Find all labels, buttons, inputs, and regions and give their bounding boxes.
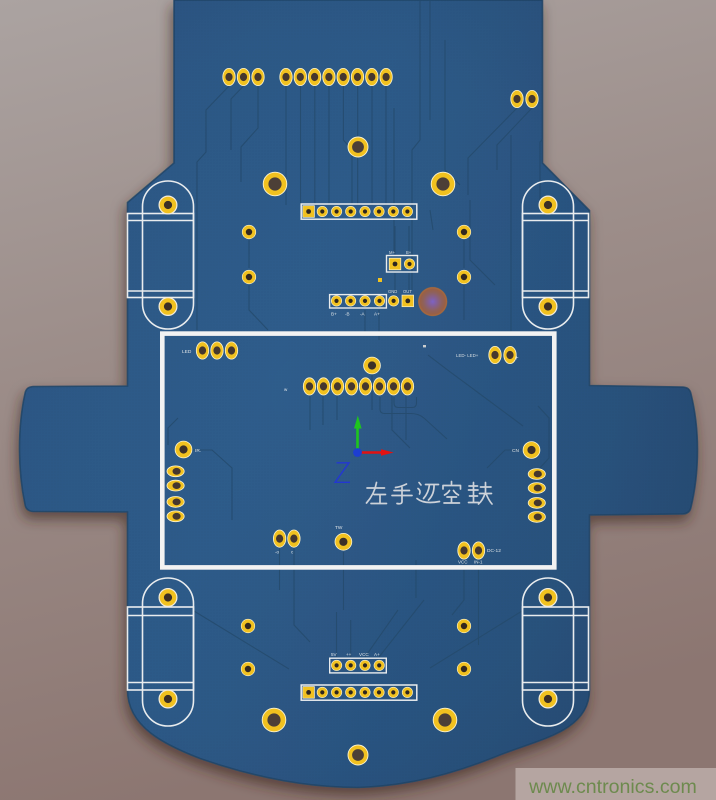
svg-text:A+: A+: [374, 312, 380, 317]
svg-text:-o: -o: [275, 550, 279, 555]
svg-text:M+: M+: [389, 250, 395, 255]
svg-text:GND: GND: [388, 289, 397, 294]
svg-text:LED- LED+: LED- LED+: [456, 353, 479, 358]
svg-text:www.cntronics.com: www.cntronics.com: [528, 776, 697, 798]
svg-text:DC-12: DC-12: [487, 548, 501, 554]
svg-text:IN-1: IN-1: [474, 560, 483, 565]
svg-text:+: +: [515, 356, 519, 362]
svg-text:A+: A+: [374, 652, 380, 657]
svg-text:++: ++: [346, 652, 352, 657]
svg-text:VCC: VCC: [359, 652, 369, 657]
svg-text:B+: B+: [331, 312, 337, 317]
svg-text:TW: TW: [335, 525, 343, 531]
svg-text:-B: -B: [345, 312, 350, 317]
svg-text:IR.: IR.: [195, 448, 201, 454]
svg-text:VCC: VCC: [458, 560, 468, 565]
svg-text:B+: B+: [406, 250, 412, 255]
svg-text:CN: CN: [512, 448, 519, 454]
svg-text:5V: 5V: [331, 652, 338, 657]
svg-text:LED: LED: [182, 349, 192, 355]
svg-text:OUT: OUT: [403, 289, 412, 294]
